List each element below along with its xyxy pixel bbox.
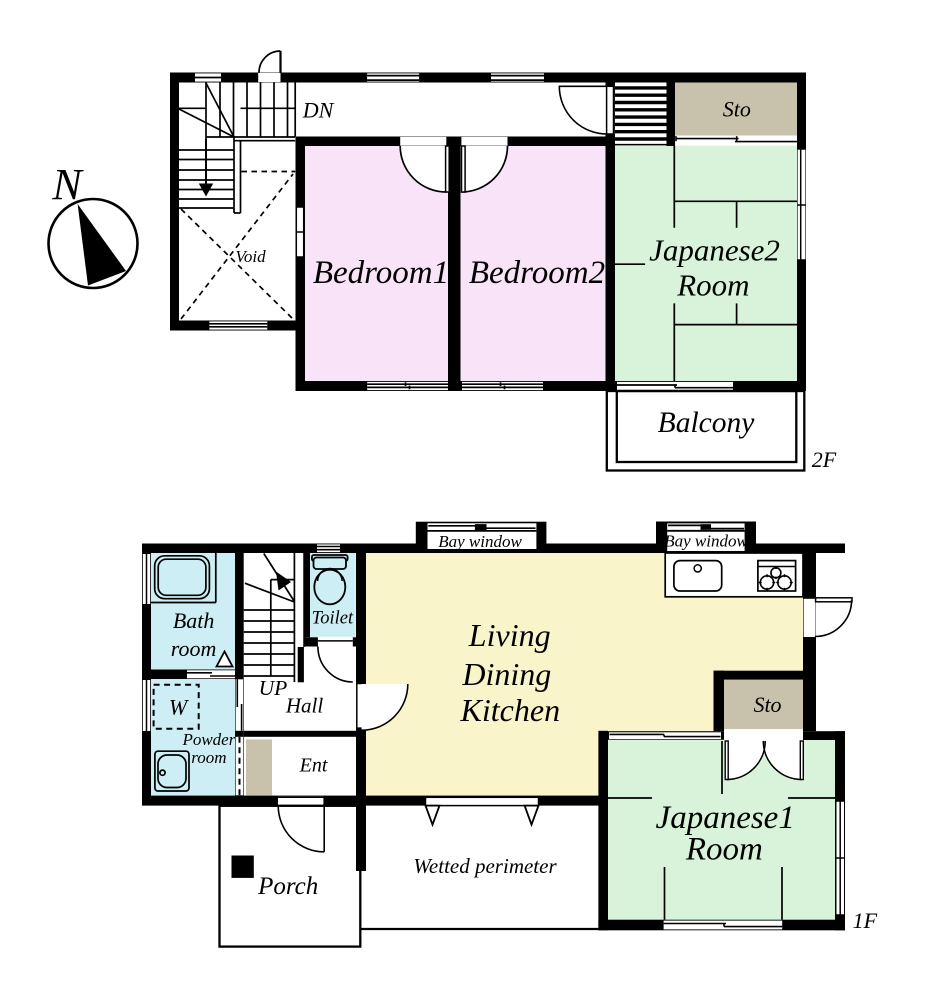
svg-text:2F: 2F	[812, 447, 837, 472]
svg-text:Dining: Dining	[461, 656, 551, 692]
svg-text:UP: UP	[259, 676, 288, 700]
svg-text:Bedroom1: Bedroom1	[313, 255, 449, 291]
svg-text:Bedroom2: Bedroom2	[469, 255, 605, 291]
svg-text:Kitchen: Kitchen	[460, 692, 561, 728]
svg-text:Room: Room	[676, 268, 749, 303]
svg-text:Hall: Hall	[285, 694, 324, 718]
svg-text:DN: DN	[302, 98, 335, 123]
svg-text:Sto: Sto	[723, 97, 751, 122]
svg-text:1F: 1F	[853, 908, 878, 933]
svg-text:Sto: Sto	[753, 692, 781, 717]
svg-text:Ent: Ent	[299, 755, 328, 777]
svg-text:N: N	[51, 160, 84, 209]
svg-text:Bath: Bath	[173, 608, 215, 633]
svg-text:Living: Living	[468, 617, 551, 653]
svg-text:Room: Room	[685, 832, 763, 868]
svg-text:Void: Void	[235, 247, 266, 266]
svg-text:room: room	[171, 636, 217, 661]
svg-text:Powder: Powder	[181, 730, 235, 749]
svg-text:Porch: Porch	[257, 873, 318, 900]
svg-text:Wetted perimeter: Wetted perimeter	[413, 854, 557, 878]
svg-text:Balcony: Balcony	[658, 407, 756, 439]
svg-text:room: room	[191, 748, 226, 767]
svg-text:Toilet: Toilet	[312, 609, 354, 629]
svg-text:Bay window: Bay window	[664, 532, 748, 551]
svg-text:Japanese2: Japanese2	[649, 233, 780, 268]
svg-text:W: W	[169, 695, 189, 720]
svg-text:Bay window: Bay window	[438, 532, 522, 551]
